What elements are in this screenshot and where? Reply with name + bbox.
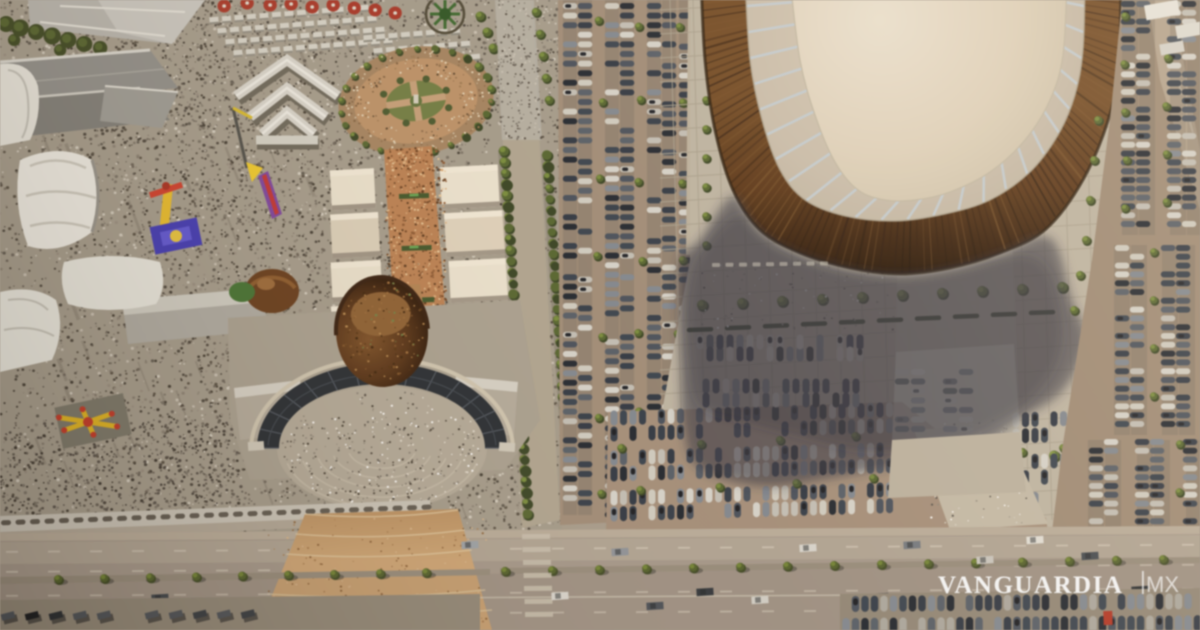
svg-text:VANGUARDIA: VANGUARDIA — [938, 572, 1123, 599]
svg-text:MX: MX — [1146, 572, 1179, 597]
